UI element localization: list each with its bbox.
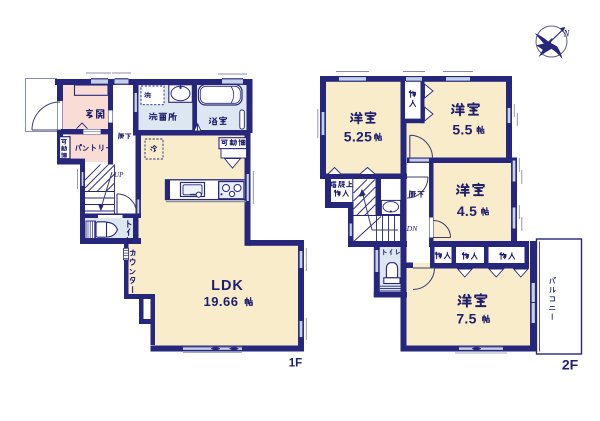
- svg-text:7.5: 7.5: [456, 311, 476, 327]
- svg-text:N: N: [562, 29, 570, 39]
- svg-text:4.5: 4.5: [457, 203, 477, 219]
- svg-text:19.66: 19.66: [203, 294, 238, 309]
- svg-text:2F: 2F: [562, 357, 579, 373]
- svg-text:DN: DN: [406, 224, 419, 233]
- svg-text:UP: UP: [114, 171, 124, 179]
- svg-text:5.25: 5.25: [344, 129, 372, 145]
- svg-text:5.5: 5.5: [452, 122, 472, 138]
- svg-text:1F: 1F: [289, 358, 302, 370]
- svg-text:LDK: LDK: [211, 278, 244, 294]
